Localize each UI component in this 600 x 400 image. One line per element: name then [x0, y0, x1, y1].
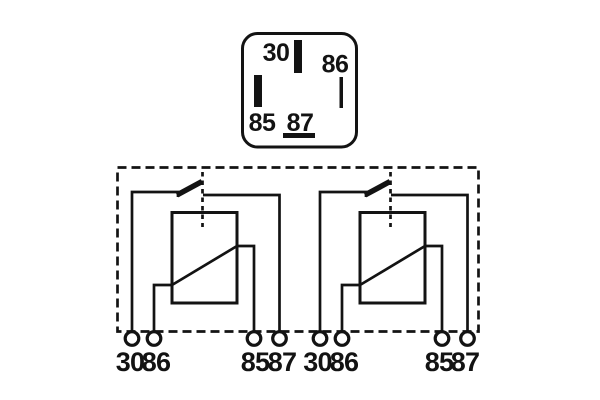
terminal-85-pin — [247, 332, 261, 346]
terminal-87-pin — [461, 332, 475, 346]
socket-pin-30-label: 30 — [263, 39, 290, 67]
relay-wiring-diagram: 30 86 85 87 — [0, 0, 600, 400]
schematic-canvas: 30 86 85 87 — [0, 0, 600, 400]
pin-86-slot-icon — [340, 77, 344, 108]
socket-pin-86-label: 86 — [322, 51, 349, 79]
circuit2-terminal-85-label: 85 — [425, 347, 454, 377]
relay-circuit-2 — [313, 172, 474, 345]
wire-terminal-85-to-coil — [425, 246, 442, 334]
switch-blade — [177, 182, 202, 196]
socket-pin-87-label: 87 — [287, 109, 314, 137]
pin-85-slot-icon — [254, 75, 262, 107]
terminal-86-pin — [147, 332, 161, 346]
wire-terminal-86-to-coil — [154, 285, 172, 334]
pin-30-slot-icon — [294, 40, 302, 73]
relay-circuit-1 — [125, 172, 286, 345]
wire-terminal-86-to-coil — [342, 285, 360, 334]
circuit2-terminal-87-label: 87 — [451, 347, 479, 377]
terminal-87-pin — [273, 332, 287, 346]
wire-terminal-87-to-switch — [203, 195, 280, 334]
terminal-30-pin — [313, 332, 327, 346]
relay-socket-top-view: 30 86 85 87 — [243, 34, 357, 148]
switch-blade — [365, 182, 390, 196]
circuit2-terminal-30-label: 30 — [303, 347, 331, 377]
coil-box — [360, 213, 425, 304]
circuit1-terminal-87-label: 87 — [268, 347, 296, 377]
terminal-labels: 30 86 85 87 30 86 85 87 — [116, 347, 479, 377]
coil-diagonal — [360, 246, 425, 285]
terminal-30-pin — [125, 332, 139, 346]
terminal-86-pin — [335, 332, 349, 346]
circuit1-terminal-85-label: 85 — [241, 347, 270, 377]
wire-terminal-87-to-switch — [391, 195, 468, 334]
socket-pin-85-label: 85 — [249, 109, 276, 137]
internal-circuit-diagram: 30 86 85 87 30 86 85 87 — [116, 168, 479, 378]
circuit1-terminal-86-label: 86 — [142, 347, 171, 377]
coil-box — [172, 213, 237, 304]
circuit2-terminal-86-label: 86 — [330, 347, 359, 377]
terminal-85-pin — [435, 332, 449, 346]
wire-terminal-85-to-coil — [237, 246, 254, 334]
coil-diagonal — [172, 246, 237, 285]
circuit1-terminal-30-label: 30 — [116, 347, 144, 377]
